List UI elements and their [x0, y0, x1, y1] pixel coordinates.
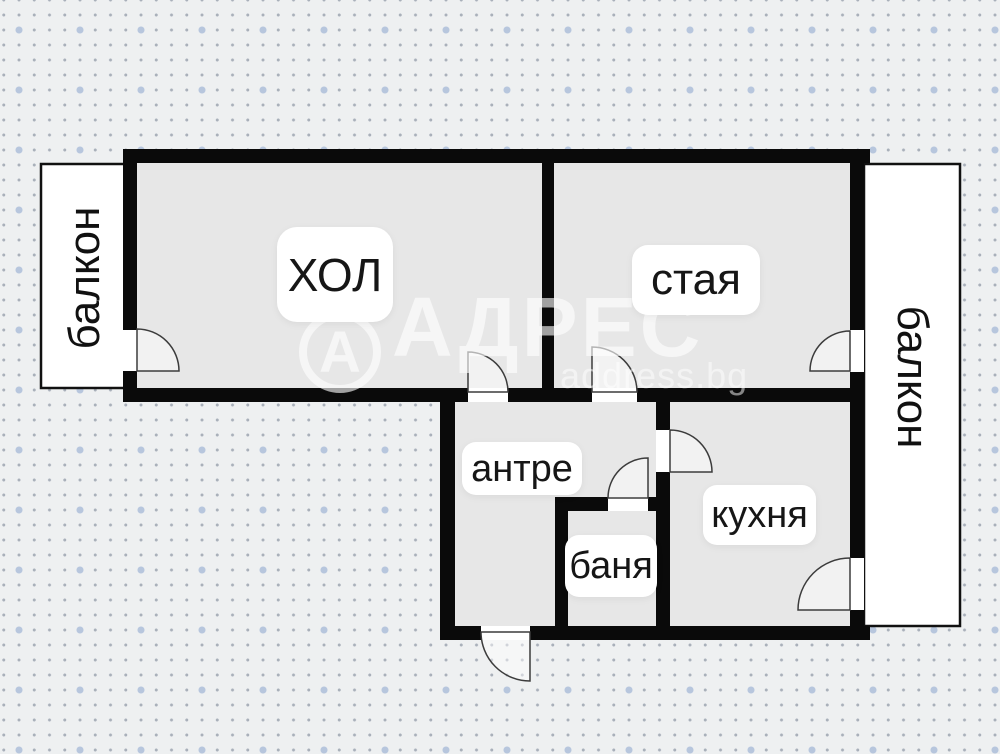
floorplan-drawing: А АДРЕС address.bg	[0, 0, 1000, 754]
room-label-kuhnya: кухня	[703, 485, 816, 545]
floorplan-canvas: А АДРЕС address.bg ХОЛ стая антре баня к…	[0, 0, 1000, 754]
wall-top	[123, 149, 870, 163]
watermark-site-text: address.bg	[560, 355, 748, 396]
wall-bottom-left	[440, 626, 481, 640]
wall-antre-left	[440, 388, 455, 640]
opening-balcony-hol	[123, 330, 137, 371]
wall-divider-kuhnya-lower	[656, 472, 670, 626]
opening-antre-kuhnya	[656, 430, 670, 472]
room-label-balkon-right: балкон	[887, 277, 937, 477]
door-arc-entrance	[481, 632, 530, 681]
room-label-balkon-left: балкон	[60, 178, 110, 378]
opening-balcony-kuhnya	[850, 558, 864, 610]
wall-right-upper	[850, 149, 864, 330]
opening-balcony-staya	[850, 330, 864, 372]
wall-mid-left	[123, 388, 468, 402]
watermark-logo-letter: А	[319, 320, 361, 385]
wall-banya-top-right	[648, 497, 670, 511]
room-label-hol: ХОЛ	[277, 227, 393, 322]
opening-banya-antre	[608, 497, 648, 511]
wall-bottom-right	[530, 626, 870, 640]
room-label-staya: стая	[632, 245, 760, 315]
room-label-antre: антре	[462, 442, 582, 495]
room-label-banya: баня	[565, 535, 657, 597]
wall-left-upper	[123, 149, 137, 330]
